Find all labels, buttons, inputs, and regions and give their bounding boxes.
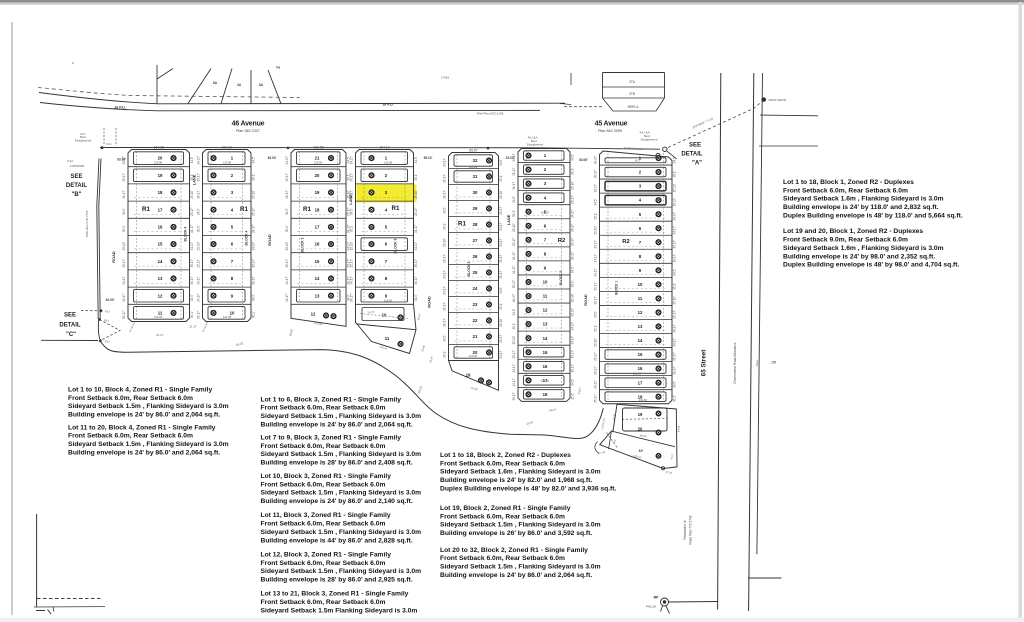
svg-text:34.17': 34.17' xyxy=(672,324,676,333)
svg-text:17: 17 xyxy=(638,380,643,385)
svg-text:DETAIL: DETAIL xyxy=(66,183,88,189)
svg-text:35.1': 35.1' xyxy=(122,225,126,232)
svg-text:"A": "A" xyxy=(692,161,702,167)
svg-text:25.17': 25.17' xyxy=(285,259,289,268)
svg-text:15: 15 xyxy=(638,352,643,357)
svg-text:18: 18 xyxy=(315,207,320,212)
svg-text:34.5': 34.5' xyxy=(196,208,200,215)
svg-text:36.17': 36.17' xyxy=(251,276,255,285)
svg-text:Sideyard Setback 1.5m , Flanki: Sideyard Setback 1.5m , Flanking Sideyar… xyxy=(261,490,422,497)
svg-text:Building envelope is 24' by 86: Building envelope is 24' by 86.0' and 2,… xyxy=(68,449,220,456)
svg-text:34.17': 34.17' xyxy=(499,238,503,247)
svg-text:30: 30 xyxy=(473,190,478,195)
svg-text:ROAD: ROAD xyxy=(583,294,588,306)
svg-text:18: 18 xyxy=(543,392,548,397)
svg-text:20: 20 xyxy=(158,156,163,161)
svg-text:34.17': 34.17' xyxy=(512,378,516,387)
svg-text:34.5': 34.5' xyxy=(190,294,194,301)
svg-text:36.17': 36.17' xyxy=(442,190,446,199)
svg-text:BLOCK 3: BLOCK 3 xyxy=(301,237,305,252)
svg-text:Lot 19, Block 2, Zoned R1 - Si: Lot 19, Block 2, Zoned R1 - Single Famil… xyxy=(440,505,571,512)
svg-text:SEE: SEE xyxy=(689,143,701,149)
svg-text:35.17': 35.17' xyxy=(196,310,200,319)
svg-text:36.17': 36.17' xyxy=(285,190,289,199)
svg-text:Front Setback 6.0m, Rear Setba: Front Setback 6.0m, Rear Setback 6.0m xyxy=(261,599,386,606)
svg-text:25.10': 25.10' xyxy=(512,336,516,345)
svg-text:35.17': 35.17' xyxy=(190,259,194,268)
svg-text:14: 14 xyxy=(638,338,643,343)
svg-text:P61.5A: P61.5A xyxy=(646,605,657,609)
svg-text:Fd.I: Fd.I xyxy=(105,310,110,314)
svg-text:15: 15 xyxy=(543,350,548,355)
svg-text:Front Setback 9.0m, Rear Setba: Front Setback 9.0m, Rear Setback 6.0m xyxy=(783,237,908,244)
svg-text:36.17': 36.17' xyxy=(512,293,516,302)
svg-text:35.17': 35.17' xyxy=(570,237,574,246)
svg-text:Remainder of: Remainder of xyxy=(683,520,687,539)
svg-text:Front Setback 6.0m, Rear Setba: Front Setback 6.0m, Rear Setback 6.0m xyxy=(440,555,565,562)
svg-text:Lot 11 to 20, Block 4, Zoned R: Lot 11 to 20, Block 4, Zoned R1 - Single… xyxy=(68,424,216,431)
svg-text:Government Road Allowance: Government Road Allowance xyxy=(733,342,737,384)
svg-text:34.17': 34.17' xyxy=(285,276,289,285)
svg-text:35.17': 35.17' xyxy=(593,394,597,403)
svg-text:Duplex Building envelope is 48: Duplex Building envelope is 48' by 118.0… xyxy=(783,212,963,219)
svg-text:34.17': 34.17' xyxy=(349,276,353,285)
svg-text:R1: R1 xyxy=(392,205,400,212)
svg-text:35.1': 35.1' xyxy=(442,223,446,230)
svg-text:46 Avenue: 46 Avenue xyxy=(232,120,265,127)
svg-text:Sideyard Setback 1.5m , Flanki: Sideyard Setback 1.5m , Flanking Sideyar… xyxy=(440,564,601,571)
svg-text:34.17': 34.17' xyxy=(672,212,676,221)
svg-text:BLOCK 1: BLOCK 1 xyxy=(615,281,619,295)
svg-text:7W: 7W xyxy=(276,66,281,70)
svg-text:Building envelope is 24' by 82: Building envelope is 24' by 82.0' and 1,… xyxy=(440,477,592,484)
svg-text:29: 29 xyxy=(473,206,478,211)
svg-text:25.10': 25.10' xyxy=(285,241,289,250)
svg-text:35.17': 35.17' xyxy=(196,173,200,182)
svg-text:35.17': 35.17' xyxy=(512,167,516,176)
svg-text:12: 12 xyxy=(543,308,548,313)
svg-text:25.10': 25.10' xyxy=(442,238,446,247)
svg-text:34.17': 34.17' xyxy=(196,155,200,164)
svg-text:36.17': 36.17' xyxy=(593,296,597,305)
svg-text:36.17': 36.17' xyxy=(570,251,574,260)
svg-text:125.69: 125.69 xyxy=(314,161,323,165)
svg-text:BLOCK 2: BLOCK 2 xyxy=(467,261,471,276)
svg-text:Lot 10, Block 3, Zoned R1 - Si: Lot 10, Block 3, Zoned R1 - Single Famil… xyxy=(261,473,392,480)
svg-text:126.09: 126.09 xyxy=(154,315,163,319)
svg-text:34.5': 34.5' xyxy=(414,294,418,301)
svg-text:25.17': 25.17' xyxy=(499,206,503,215)
svg-text:34.17': 34.17' xyxy=(672,338,676,347)
svg-text:R/W Plan 822 3145: R/W Plan 822 3145 xyxy=(477,112,504,116)
svg-text:Duplex Building envelope is 48: Duplex Building envelope is 48' by 82.0'… xyxy=(440,485,617,492)
svg-text:11: 11 xyxy=(638,296,643,301)
svg-text:Lot 13 to 21, Block 3, Zoned R: Lot 13 to 21, Block 3, Zoned R1 - Single… xyxy=(261,591,409,598)
svg-text:34.17': 34.17' xyxy=(285,293,289,302)
svg-text:34.17': 34.17' xyxy=(196,276,200,285)
svg-text:34.5': 34.5' xyxy=(570,266,574,273)
svg-text:19: 19 xyxy=(158,173,163,178)
svg-text:34.17': 34.17' xyxy=(349,293,353,302)
svg-text:25.10': 25.10' xyxy=(499,318,503,327)
svg-text:28: 28 xyxy=(473,222,478,227)
svg-text:35.17': 35.17' xyxy=(414,259,418,268)
svg-text:35.1': 35.1' xyxy=(414,174,418,181)
svg-text:15: 15 xyxy=(315,259,320,264)
svg-text:25.10': 25.10' xyxy=(122,241,126,250)
svg-text:34.17': 34.17' xyxy=(122,276,126,285)
svg-text:123.48: 123.48 xyxy=(223,315,232,319)
svg-text:34.5': 34.5' xyxy=(442,335,446,342)
svg-text:11: 11 xyxy=(543,294,548,299)
svg-text:104.15: 104.15 xyxy=(154,145,164,149)
svg-text:14: 14 xyxy=(315,276,320,281)
svg-text:34.5': 34.5' xyxy=(593,198,597,205)
svg-text:RP: RP xyxy=(654,596,659,600)
svg-text:Building envelope is 28' by 86: Building envelope is 28' by 86.0' and 2,… xyxy=(261,576,413,583)
svg-text:25.10': 25.10' xyxy=(251,190,255,199)
svg-text:Lot 20 to 32, Block 2, Zoned R: Lot 20 to 32, Block 2, Zoned R1 - Single… xyxy=(440,547,588,554)
svg-text:123.28: 123.28 xyxy=(469,165,478,169)
svg-text:LANE: LANE xyxy=(191,174,196,185)
svg-text:118.00': 118.00' xyxy=(541,211,550,215)
svg-text:BLOCK 4: BLOCK 4 xyxy=(184,226,188,241)
svg-text:34.17': 34.17' xyxy=(570,336,574,345)
svg-text:35.17': 35.17' xyxy=(442,302,446,311)
svg-text:R2: R2 xyxy=(622,239,629,245)
svg-text:25.17': 25.17' xyxy=(672,310,676,319)
svg-text:17: 17 xyxy=(158,207,163,212)
svg-text:LANE: LANE xyxy=(506,214,511,225)
svg-text:35.17': 35.17' xyxy=(349,173,353,182)
svg-text:31: 31 xyxy=(473,174,478,179)
svg-text:15: 15 xyxy=(158,242,163,247)
svg-text:16: 16 xyxy=(543,364,548,369)
svg-text:36.17': 36.17' xyxy=(190,276,194,285)
svg-text:35.1': 35.1' xyxy=(672,283,676,290)
svg-text:34.5': 34.5' xyxy=(190,156,194,163)
svg-text:R1: R1 xyxy=(240,206,248,213)
svg-text:Lot 12, Block 3, Zoned R1 - Si: Lot 12, Block 3, Zoned R1 - Single Famil… xyxy=(261,551,392,558)
svg-text:118.00': 118.00' xyxy=(633,372,642,376)
svg-text:34.17': 34.17' xyxy=(349,155,353,164)
svg-text:25.17': 25.17' xyxy=(442,254,446,263)
svg-text:ROAD: ROAD xyxy=(111,251,116,263)
svg-text:34.5': 34.5' xyxy=(414,156,418,163)
svg-text:22: 22 xyxy=(473,318,478,323)
svg-text:34.5': 34.5' xyxy=(499,159,503,166)
svg-text:25.17': 25.17' xyxy=(190,207,194,216)
svg-text:34.17': 34.17' xyxy=(196,293,200,302)
svg-text:26: 26 xyxy=(473,254,478,259)
svg-text:14.3: 14.3 xyxy=(634,159,640,163)
svg-text:35.17': 35.17' xyxy=(442,174,446,183)
svg-text:65 Street: 65 Street xyxy=(701,349,708,377)
svg-text:34.5': 34.5' xyxy=(251,294,255,301)
svg-text:34.5': 34.5' xyxy=(285,208,289,215)
svg-text:34.5': 34.5' xyxy=(251,156,255,163)
svg-text:34.5': 34.5' xyxy=(349,208,353,215)
svg-text:BLOCK 2: BLOCK 2 xyxy=(559,271,563,285)
svg-text:35.17': 35.17' xyxy=(122,310,126,319)
svg-text:Front Setback 6.0m, Rear Setba: Front Setback 6.0m, Rear Setback 6.0m xyxy=(783,187,908,194)
svg-text:"C": "C" xyxy=(66,332,76,338)
svg-text:35.1': 35.1' xyxy=(512,210,516,217)
svg-text:35.1': 35.1' xyxy=(196,225,200,232)
svg-text:35.1': 35.1' xyxy=(570,393,574,400)
svg-text:Lot 19 and 20, Block 1, Zoned: Lot 19 and 20, Block 1, Zoned R2 - Duple… xyxy=(783,228,923,235)
svg-text:35.17': 35.17' xyxy=(593,282,597,291)
svg-text:34.5': 34.5' xyxy=(122,208,126,215)
svg-text:35.1': 35.1' xyxy=(593,212,597,219)
svg-text:35.1': 35.1' xyxy=(442,351,446,358)
svg-text:35.1': 35.1' xyxy=(570,280,574,287)
svg-text:35.17': 35.17' xyxy=(251,259,255,268)
svg-text:DETAIL: DETAIL xyxy=(681,152,703,158)
svg-text:25.10': 25.10' xyxy=(593,338,597,347)
svg-text:34.17': 34.17' xyxy=(570,322,574,331)
svg-text:Plan 382 2327: Plan 382 2327 xyxy=(236,129,260,133)
svg-text:23: 23 xyxy=(473,302,478,307)
svg-text:Front Setback 6.0m, Rear Setba: Front Setback 6.0m, Rear Setback 6.0m xyxy=(261,560,386,567)
svg-text:35.1': 35.1' xyxy=(593,325,597,332)
svg-text:R1: R1 xyxy=(142,206,150,213)
svg-text:Building envelope is 24' by 11: Building envelope is 24' by 118.0' and 2… xyxy=(783,204,939,211)
svg-text:34.17': 34.17' xyxy=(190,224,194,233)
svg-text:35.1': 35.1' xyxy=(499,175,503,182)
svg-text:26ft: 26ft xyxy=(771,361,776,365)
svg-text:25.10': 25.10' xyxy=(196,241,200,250)
svg-text:31*: 31* xyxy=(639,449,645,453)
svg-text:34.17': 34.17' xyxy=(499,350,503,359)
svg-text:35.17': 35.17' xyxy=(672,352,676,361)
svg-text:35.17': 35.17' xyxy=(122,173,126,182)
svg-text:SEE: SEE xyxy=(64,313,76,319)
svg-text:Plan 842 3099: Plan 842 3099 xyxy=(598,129,622,133)
svg-text:104.66': 104.66' xyxy=(639,398,648,402)
svg-text:25.10': 25.10' xyxy=(593,226,597,235)
svg-text:25.10': 25.10' xyxy=(672,183,676,192)
svg-text:20: 20 xyxy=(315,173,320,178)
svg-text:35.1': 35.1' xyxy=(672,395,676,402)
svg-text:17: 17 xyxy=(315,225,320,230)
svg-text:Sideyard Setback 1.5m , Flanki: Sideyard Setback 1.5m , Flanking Sideyar… xyxy=(261,451,422,458)
svg-text:34.17': 34.17' xyxy=(593,155,597,164)
svg-text:DETAIL: DETAIL xyxy=(59,323,81,329)
svg-text:34.17': 34.17' xyxy=(570,223,574,232)
svg-text:Front Setback 6.0m, Rear Setba: Front Setback 6.0m, Rear Setback 6.0m xyxy=(261,443,386,450)
svg-text:32: 32 xyxy=(473,158,478,163)
svg-text:45 Avenue: 45 Avenue xyxy=(595,120,628,127)
svg-text:18: 18 xyxy=(158,190,163,195)
svg-text:ROAD: ROAD xyxy=(267,234,272,246)
svg-text:85.67: 85.67 xyxy=(469,148,477,152)
svg-text:36.17': 36.17' xyxy=(570,364,574,373)
svg-text:Building envelope is 24' by 86: Building envelope is 24' by 86.0' and 2,… xyxy=(68,412,220,419)
svg-text:34.17': 34.17' xyxy=(251,241,255,250)
svg-text:25.17': 25.17' xyxy=(593,240,597,249)
svg-text:REPLA: REPLA xyxy=(628,105,640,109)
svg-text:25.17': 25.17' xyxy=(499,334,503,343)
svg-text:Sideyard Setback 1.6m , Flanki: Sideyard Setback 1.6m , Flanking Sideyar… xyxy=(440,469,601,476)
svg-text:Sideyard Setback 1.5m , Flanki: Sideyard Setback 1.5m , Flanking Sideyar… xyxy=(261,568,422,575)
svg-text:36.17': 36.17' xyxy=(196,190,200,199)
svg-text:34.17': 34.17' xyxy=(414,224,418,233)
svg-text:8A: 8A xyxy=(259,83,264,87)
svg-text:83.06': 83.06' xyxy=(579,158,588,162)
svg-text:34.5': 34.5' xyxy=(512,196,516,203)
svg-text:35.1': 35.1' xyxy=(499,303,503,310)
svg-text:BLOCK 4: BLOCK 4 xyxy=(245,230,249,245)
svg-text:1609 Rice STD 7725: 1609 Rice STD 7725 xyxy=(85,210,89,237)
svg-text:Lot 1 to 18, Block 1, Zoned R2: Lot 1 to 18, Block 1, Zoned R2 - Duplexe… xyxy=(783,179,914,186)
svg-text:35.1': 35.1' xyxy=(512,322,516,329)
svg-text:R2: R2 xyxy=(558,238,565,244)
svg-text:34.17': 34.17' xyxy=(285,155,289,164)
svg-text:Front Setback 6.0m, Rear Setba: Front Setback 6.0m, Rear Setback 6.0m xyxy=(440,460,565,467)
svg-text:34.17': 34.17' xyxy=(512,265,516,274)
svg-text:25: 25 xyxy=(473,270,478,275)
svg-text:104.10: 104.10 xyxy=(222,145,232,149)
svg-text:25.17': 25.17' xyxy=(570,195,574,204)
svg-text:Building envelope is 28' by 86: Building envelope is 28' by 86.0' and 2,… xyxy=(261,460,413,467)
svg-text:104.10: 104.10 xyxy=(379,145,389,149)
svg-text:34.5': 34.5' xyxy=(499,287,503,294)
svg-text:R1: R1 xyxy=(458,221,466,228)
svg-text:34.17': 34.17' xyxy=(512,364,516,373)
svg-text:25.10': 25.10' xyxy=(570,181,574,190)
svg-text:Lot 1 to 18, Block 2, Zoned R2: Lot 1 to 18, Block 2, Zoned R2 - Duplexe… xyxy=(440,452,571,459)
svg-text:10: 10 xyxy=(382,313,387,318)
svg-text:10: 10 xyxy=(230,311,235,316)
svg-text:13: 13 xyxy=(543,322,548,327)
svg-text:34.17': 34.17' xyxy=(442,158,446,167)
svg-text:34.17': 34.17' xyxy=(442,270,446,279)
svg-text:35.17': 35.17' xyxy=(672,240,676,249)
svg-text:16: 16 xyxy=(158,225,163,230)
svg-text:34.5': 34.5' xyxy=(442,207,446,214)
svg-text:33.00': 33.00' xyxy=(105,298,114,302)
svg-text:34.5': 34.5' xyxy=(593,311,597,318)
svg-text:25.10': 25.10' xyxy=(499,190,503,199)
svg-text:Fd.I: Fd.I xyxy=(104,319,109,323)
svg-text:12: 12 xyxy=(311,312,316,317)
svg-text:126.60: 126.60 xyxy=(384,299,393,303)
svg-text:Sideyard Setback 1.5m Flankin: Sideyard Setback 1.5m Flanking Sideyard … xyxy=(261,607,418,614)
svg-text:Building envelope is 24' by 86: Building envelope is 24' by 86.0' and 2,… xyxy=(261,498,413,505)
svg-text:25.10': 25.10' xyxy=(672,296,676,305)
svg-text:Road Plan 772 2739: Road Plan 772 2739 xyxy=(689,515,693,544)
svg-text:34.5': 34.5' xyxy=(672,381,676,388)
svg-text:Building envelope is 44' by 86: Building envelope is 44' by 86.0' and 2,… xyxy=(261,537,413,544)
svg-text:Sideyard Setback 1.5m , Flanki: Sideyard Setback 1.5m , Flanking Sideyar… xyxy=(440,522,601,529)
svg-text:17481: 17481 xyxy=(441,76,450,80)
svg-text:25.17': 25.17' xyxy=(251,207,255,216)
svg-text:19: 19 xyxy=(638,412,643,417)
svg-text:16: 16 xyxy=(315,242,320,247)
svg-text:Front Setback 6.0m, Rear Setba: Front Setback 6.0m, Rear Setback 6.0m xyxy=(68,433,193,440)
svg-text:34.5': 34.5' xyxy=(570,379,574,386)
svg-text:25.10': 25.10' xyxy=(570,293,574,302)
svg-text:13: 13 xyxy=(638,324,643,329)
svg-text:34.17': 34.17' xyxy=(251,224,255,233)
svg-text:59.02': 59.02' xyxy=(424,156,433,160)
svg-text:Sideyard Setback 1.5m , Flanki: Sideyard Setback 1.5m , Flanking Sideyar… xyxy=(68,403,229,410)
svg-text:COP18X8F: COP18X8F xyxy=(70,164,85,168)
svg-text:34.17': 34.17' xyxy=(442,286,446,295)
svg-text:125.69: 125.69 xyxy=(384,161,393,165)
svg-text:64.60: 64.60 xyxy=(676,425,680,432)
svg-text:Fd.I: Fd.I xyxy=(105,340,110,344)
svg-text:25.17': 25.17' xyxy=(196,259,200,268)
svg-text:10: 10 xyxy=(638,282,643,287)
svg-text:Sideyard Setback 1.6m , Flanki: Sideyard Setback 1.6m , Flanking Sideyar… xyxy=(783,245,944,252)
svg-text:4U: 4U xyxy=(237,83,242,87)
svg-text:"B": "B" xyxy=(71,192,81,198)
svg-text:Building envelope is 24' by 86: Building envelope is 24' by 86.0' and 2,… xyxy=(440,572,592,579)
svg-text:16 P.U.: 16 P.U. xyxy=(382,103,394,107)
svg-text:R1: R1 xyxy=(303,206,311,213)
svg-text:34.17': 34.17' xyxy=(593,380,597,389)
svg-text:Front Setback 6.0m, Rear Setba: Front Setback 6.0m, Rear Setback 6.0m xyxy=(68,395,193,402)
svg-text:21.17': 21.17' xyxy=(156,333,164,337)
svg-text:Front Setback 6.0m, Rear Setba: Front Setback 6.0m, Rear Setback 6.0m xyxy=(261,481,386,488)
svg-text:19: 19 xyxy=(315,190,320,195)
svg-text:36.17': 36.17' xyxy=(672,366,676,375)
svg-text:35.17': 35.17' xyxy=(512,279,516,288)
svg-text:36.17': 36.17' xyxy=(414,276,418,285)
svg-text:125.89: 125.89 xyxy=(154,161,163,165)
svg-text:102.96: 102.96 xyxy=(313,145,323,149)
svg-text:Straightened: Straightened xyxy=(527,143,544,147)
svg-text:123.68: 123.68 xyxy=(223,161,232,165)
svg-text:34.17': 34.17' xyxy=(499,222,503,231)
svg-text:36.17': 36.17' xyxy=(512,181,516,190)
svg-text:Lot 11, Block 3, Zoned R1 - Si: Lot 11, Block 3, Zoned R1 - Single Famil… xyxy=(261,512,391,519)
svg-text:Fd.I.: Fd.I. xyxy=(107,142,113,146)
svg-text:Sideyard Setback 1.5m , Flanki: Sideyard Setback 1.5m , Flanking Sideyar… xyxy=(68,441,229,448)
svg-text:34.17': 34.17' xyxy=(122,155,126,164)
svg-text:14: 14 xyxy=(543,336,548,341)
svg-text:Sideyard Setback 1.5m , Flanki: Sideyard Setback 1.5m , Flanking Sideyar… xyxy=(261,413,422,420)
svg-text:13: 13 xyxy=(315,293,320,298)
svg-text:35.17': 35.17' xyxy=(512,392,516,401)
svg-text:25.17': 25.17' xyxy=(512,237,516,246)
svg-text:34.5': 34.5' xyxy=(672,269,676,276)
svg-text:Sideyard Setback 1.6m , Flanki: Sideyard Setback 1.6m , Flanking Sideyar… xyxy=(783,196,944,203)
svg-text:20: 20 xyxy=(638,427,643,432)
svg-text:Front Setback 6.0m, Rear Setba: Front Setback 6.0m, Rear Setback 6.0m xyxy=(261,405,386,412)
svg-text:25.10': 25.10' xyxy=(414,190,418,199)
svg-text:19: 19 xyxy=(466,373,471,378)
svg-text:34.17': 34.17' xyxy=(570,209,574,218)
svg-text:Building envelope is 24' by 98: Building envelope is 24' by 98.0' and 2,… xyxy=(783,253,935,260)
svg-text:25.10': 25.10' xyxy=(349,241,353,250)
svg-text:25.17': 25.17' xyxy=(122,259,126,268)
svg-text:27B: 27B xyxy=(629,92,636,96)
svg-text:34.17': 34.17' xyxy=(190,241,194,250)
svg-text:34.17': 34.17' xyxy=(593,268,597,277)
svg-text:16: 16 xyxy=(638,366,643,371)
svg-text:6.34: 6.34 xyxy=(67,159,73,163)
svg-text:53.00': 53.00' xyxy=(268,156,277,160)
svg-text:ROAD: ROAD xyxy=(427,296,432,308)
svg-text:35.17': 35.17' xyxy=(570,350,574,359)
svg-text:25.17': 25.17' xyxy=(672,198,676,207)
svg-text:BLOCK 3: BLOCK 3 xyxy=(394,238,398,253)
svg-text:36.17': 36.17' xyxy=(442,318,446,327)
svg-text:34.5': 34.5' xyxy=(570,154,574,161)
